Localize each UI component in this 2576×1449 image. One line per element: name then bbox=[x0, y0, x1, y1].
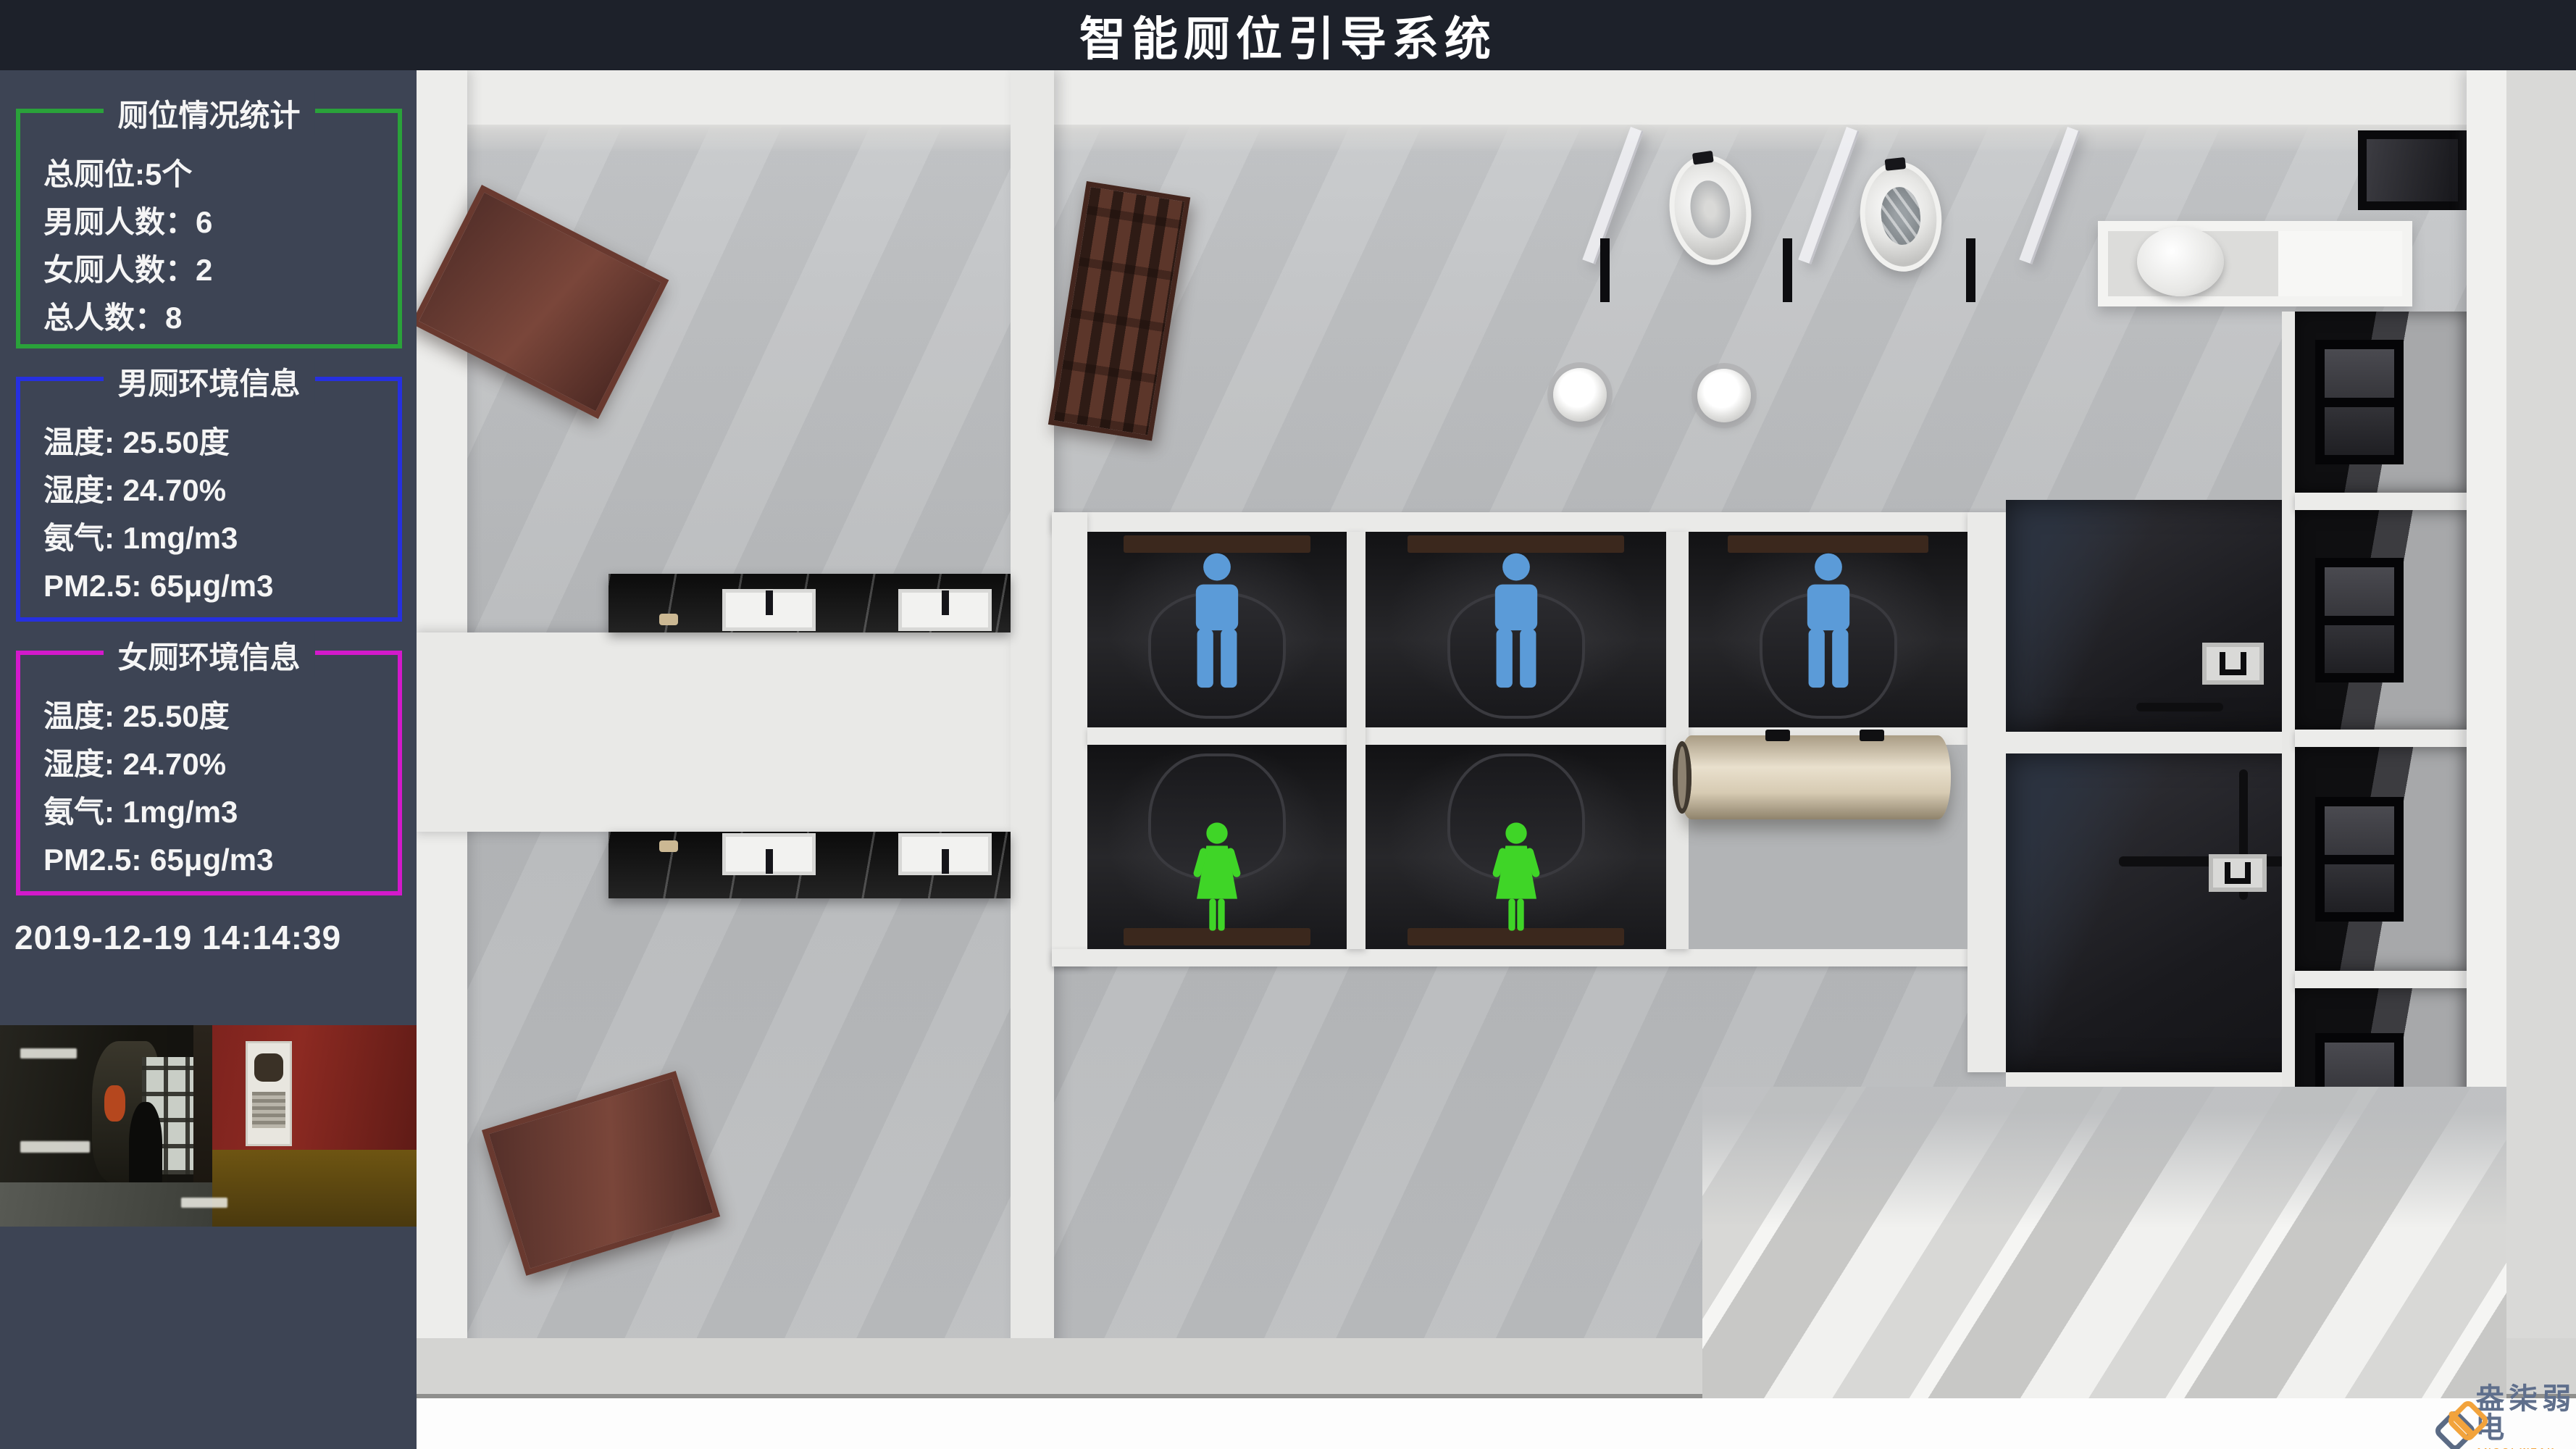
squat-partition bbox=[2295, 493, 2467, 510]
male-occupant-icon bbox=[1186, 552, 1248, 701]
sink bbox=[722, 589, 816, 631]
outside-floor bbox=[417, 1398, 2576, 1449]
stall-shelf bbox=[1124, 535, 1310, 553]
camera-osd-mark bbox=[20, 1141, 90, 1153]
open-bay bbox=[1689, 745, 1967, 949]
male-humidity-text: 湿度: 24.70% bbox=[43, 467, 390, 514]
female-temp-text: 温度: 25.50度 bbox=[43, 693, 390, 740]
flush-plate bbox=[2202, 643, 2264, 685]
stall-stats-title: 厕位情况统计 bbox=[103, 91, 314, 135]
paper-roll bbox=[1678, 735, 1951, 819]
squat-stall bbox=[2295, 312, 2467, 493]
grab-bar bbox=[2136, 703, 2223, 711]
mop-sink-basin bbox=[2137, 227, 2224, 296]
logo-name: 盎柒弱电 bbox=[2475, 1385, 2576, 1442]
stall-block-wall bbox=[1052, 512, 2006, 532]
squat-stall bbox=[2295, 747, 2467, 971]
total-stalls-text: 总厕位:5个 bbox=[43, 151, 390, 199]
squat-partition bbox=[2295, 730, 2467, 747]
male-occupant-icon bbox=[1485, 552, 1547, 701]
ceiling-lamp bbox=[1553, 368, 1607, 422]
sink-counter-upper bbox=[609, 574, 1011, 632]
male-env-lines: 温度: 25.50度 湿度: 24.70% 氨气: 1mg/m3 PM2.5: … bbox=[20, 381, 398, 610]
soap-dispenser bbox=[659, 840, 678, 852]
stall-cell bbox=[1087, 532, 1347, 727]
logo-mark-icon bbox=[2438, 1403, 2464, 1447]
female-humidity-text: 湿度: 24.70% bbox=[43, 740, 390, 788]
camera-osd-mark bbox=[181, 1198, 227, 1208]
female-count-text: 女厕人数：2 bbox=[43, 246, 390, 294]
camera-osd-mark bbox=[20, 1048, 77, 1058]
center-wall bbox=[1011, 70, 1054, 1398]
divider-support-rod bbox=[1966, 238, 1975, 302]
stall-block-wall bbox=[1967, 512, 2006, 1072]
logo-text: 盎柒弱电 ANGQI WEAK ELECTRICITY bbox=[2475, 1385, 2576, 1449]
urinal-flush-cap bbox=[1885, 157, 1907, 171]
female-occupant-icon bbox=[1487, 822, 1545, 938]
stall-partition bbox=[1347, 532, 1366, 949]
sidebar: 厕位情况统计 总厕位:5个 男厕人数：6 女厕人数：2 总人数：8 男厕环境信息… bbox=[0, 70, 417, 1449]
squat-pan bbox=[2315, 797, 2404, 922]
squat-fixture bbox=[2358, 130, 2467, 210]
stall-shelf bbox=[1728, 535, 1928, 553]
page-title: 智能厕位引导系统 bbox=[1079, 2, 1497, 69]
mid-dividing-wall bbox=[417, 632, 1054, 832]
stall-cell bbox=[1366, 745, 1666, 949]
timestamp: 2019-12-19 14:14:39 bbox=[14, 918, 341, 957]
mop-sink-shelf bbox=[2278, 231, 2402, 296]
ceiling-lamp bbox=[1697, 369, 1751, 422]
female-env-title: 女厕环境信息 bbox=[103, 633, 314, 677]
entrance-door-lower bbox=[482, 1071, 720, 1276]
stall-cell bbox=[1689, 532, 1967, 727]
female-ammonia-text: 氨气: 1mg/m3 bbox=[43, 788, 390, 836]
stall-block-wall bbox=[1052, 949, 2006, 966]
top-wall-shadow bbox=[417, 125, 2576, 152]
vendor-logo: 盎柒弱电 ANGQI WEAK ELECTRICITY bbox=[2438, 1403, 2576, 1447]
faucet bbox=[766, 590, 773, 615]
female-occupant-icon bbox=[1188, 822, 1246, 938]
camera-yellow-wall bbox=[212, 1150, 417, 1227]
stall-block-wall bbox=[1052, 512, 1087, 966]
squat-partition bbox=[2295, 971, 2467, 988]
male-temp-text: 温度: 25.50度 bbox=[43, 419, 390, 467]
squat-pan bbox=[2315, 558, 2404, 682]
male-env-panel: 男厕环境信息 温度: 25.50度 湿度: 24.70% 氨气: 1mg/m3 … bbox=[16, 377, 402, 622]
sink bbox=[898, 833, 992, 875]
title-bar: 智能厕位引导系统 bbox=[0, 0, 2576, 70]
stall-shelf bbox=[1408, 535, 1624, 553]
outer-wall-strip bbox=[2506, 70, 2576, 1398]
divider-support-rod bbox=[1600, 238, 1610, 302]
divider-support-rod bbox=[1783, 238, 1792, 302]
squat-column-wall bbox=[2282, 312, 2295, 1203]
urinal bbox=[1663, 150, 1758, 270]
camera-poster-text bbox=[252, 1092, 285, 1128]
urinal-flush-cap bbox=[1692, 151, 1714, 165]
male-occupant-icon bbox=[1797, 552, 1860, 701]
total-people-text: 总人数：8 bbox=[43, 294, 390, 342]
sink bbox=[722, 833, 816, 875]
female-pm25-text: PM2.5: 65μg/m3 bbox=[43, 836, 390, 884]
flush-plate bbox=[2209, 854, 2267, 892]
female-env-lines: 温度: 25.50度 湿度: 24.70% 氨气: 1mg/m3 PM2.5: … bbox=[20, 655, 398, 884]
female-env-panel: 女厕环境信息 温度: 25.50度 湿度: 24.70% 氨气: 1mg/m3 … bbox=[16, 651, 402, 895]
stall-cell bbox=[1087, 745, 1347, 949]
faucet bbox=[942, 849, 949, 874]
floorplan-scene: 盎柒弱电 ANGQI WEAK ELECTRICITY bbox=[417, 70, 2576, 1449]
male-env-title: 男厕环境信息 bbox=[103, 359, 314, 404]
stall-cell bbox=[1366, 532, 1666, 727]
squat-stall bbox=[2295, 510, 2467, 730]
urinal bbox=[1854, 158, 1946, 276]
squat-pan bbox=[2315, 340, 2404, 464]
faucet bbox=[766, 849, 773, 874]
camera-feed bbox=[0, 1025, 417, 1227]
mop-sink bbox=[2098, 221, 2412, 306]
male-pm25-text: PM2.5: 65μg/m3 bbox=[43, 562, 390, 610]
top-wall bbox=[417, 70, 2576, 125]
camera-person-silhouette bbox=[129, 1102, 162, 1195]
camera-poster-art bbox=[254, 1053, 283, 1082]
male-count-text: 男厕人数：6 bbox=[43, 199, 390, 246]
roll-bracket bbox=[1765, 730, 1790, 741]
sink-counter-lower bbox=[609, 832, 1011, 898]
camera-orange-object bbox=[104, 1085, 125, 1122]
sink bbox=[898, 589, 992, 631]
stall-stats-lines: 总厕位:5个 男厕人数：6 女厕人数：2 总人数：8 bbox=[20, 113, 398, 342]
slatted-entry-door bbox=[1048, 181, 1190, 440]
soap-dispenser bbox=[659, 614, 678, 625]
camera-red-wall bbox=[212, 1025, 417, 1150]
faucet bbox=[942, 590, 949, 615]
male-ammonia-text: 氨气: 1mg/m3 bbox=[43, 514, 390, 562]
stall-stats-panel: 厕位情况统计 总厕位:5个 男厕人数：6 女厕人数：2 总人数：8 bbox=[16, 109, 402, 348]
entrance-steps bbox=[1702, 1087, 2506, 1400]
roll-bracket bbox=[1860, 730, 1884, 741]
